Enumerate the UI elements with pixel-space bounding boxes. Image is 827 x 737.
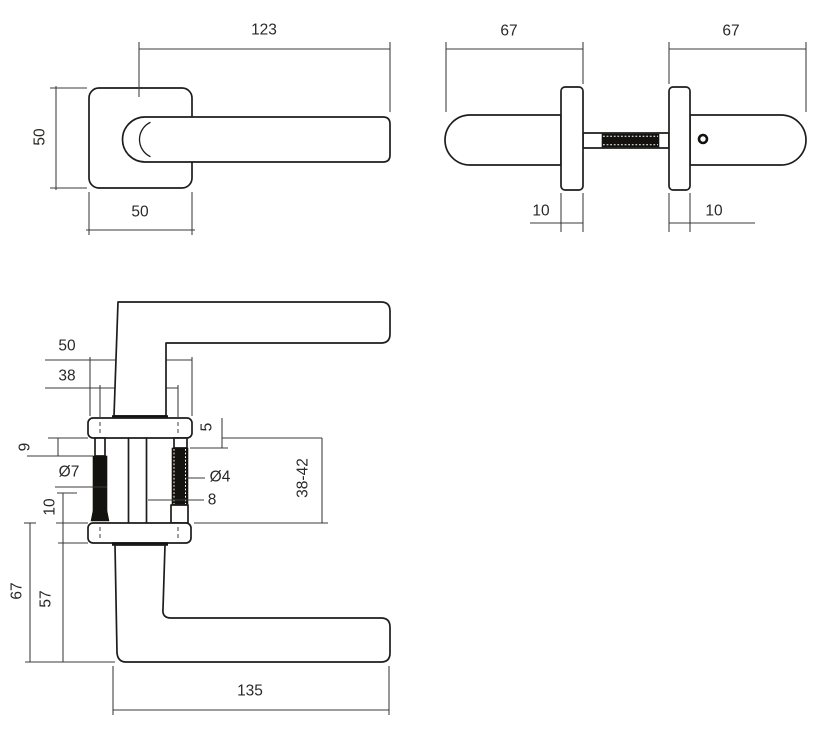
dim-label: Ø7 — [59, 464, 80, 481]
section-view: 50 38 — [9, 302, 391, 715]
dim-label: 123 — [251, 22, 277, 39]
left-sleeve-rod — [93, 456, 107, 511]
dim-section-lever-offset: 57 — [25, 543, 115, 662]
dim-label: 5 — [199, 423, 216, 432]
right-screw-boss — [174, 438, 187, 448]
side-view: 67 67 10 10 — [445, 23, 806, 233]
dim-label: 57 — [38, 590, 55, 607]
dim-label: 10 — [42, 498, 59, 516]
dim-label: 38-42 — [295, 458, 312, 498]
dim-label: 67 — [722, 23, 739, 40]
dim-label: 9 — [17, 443, 34, 452]
left-sleeve-boss — [95, 438, 105, 456]
left-sleeve-foot — [91, 511, 109, 521]
drawing-canvas: 123 50 50 67 — [0, 0, 827, 737]
dim-section-rose-offset: 10 — [42, 493, 89, 662]
technical-drawing: 123 50 50 67 — [0, 0, 827, 737]
left-handle-profile — [445, 115, 561, 165]
dim-label: Ø4 — [210, 469, 231, 486]
dim-label: 67 — [9, 582, 26, 599]
dim-section-lever-length: 135 — [113, 666, 389, 715]
left-rose-side — [561, 87, 583, 190]
dim-label: 50 — [32, 128, 49, 146]
right-rose-side — [669, 87, 690, 190]
front-lever-handle — [123, 117, 391, 162]
dim-label: 10 — [705, 203, 723, 220]
label-screw-diameter: Ø4 — [186, 469, 231, 486]
dim-label: 8 — [208, 492, 217, 509]
dim-label: 135 — [237, 683, 263, 700]
dim-label: 38 — [58, 368, 75, 385]
dim-front-rose-width: 50 — [86, 192, 195, 235]
dim-side-rose-thickness-right: 10 — [669, 193, 755, 232]
dim-label: 10 — [532, 203, 550, 220]
dim-label: 50 — [58, 338, 76, 355]
right-screw-foot — [171, 505, 188, 523]
lower-rose-section — [88, 523, 191, 543]
dim-label: 67 — [500, 23, 517, 40]
lower-lever-section — [115, 545, 390, 662]
set-screw-hole — [699, 135, 707, 143]
front-view: 123 50 50 — [32, 22, 391, 236]
dim-side-rose-thickness-left: 10 — [530, 193, 583, 232]
dim-section-handle-depth: 67 — [9, 523, 37, 662]
upper-rose-section — [88, 418, 192, 438]
dim-section-sleeve-length: 9 — [17, 438, 94, 456]
upper-lever-section — [114, 302, 390, 416]
dim-section-boss-height: 5 — [190, 418, 228, 448]
dim-label: 50 — [131, 204, 149, 221]
dim-front-rose-height: 50 — [32, 86, 88, 190]
